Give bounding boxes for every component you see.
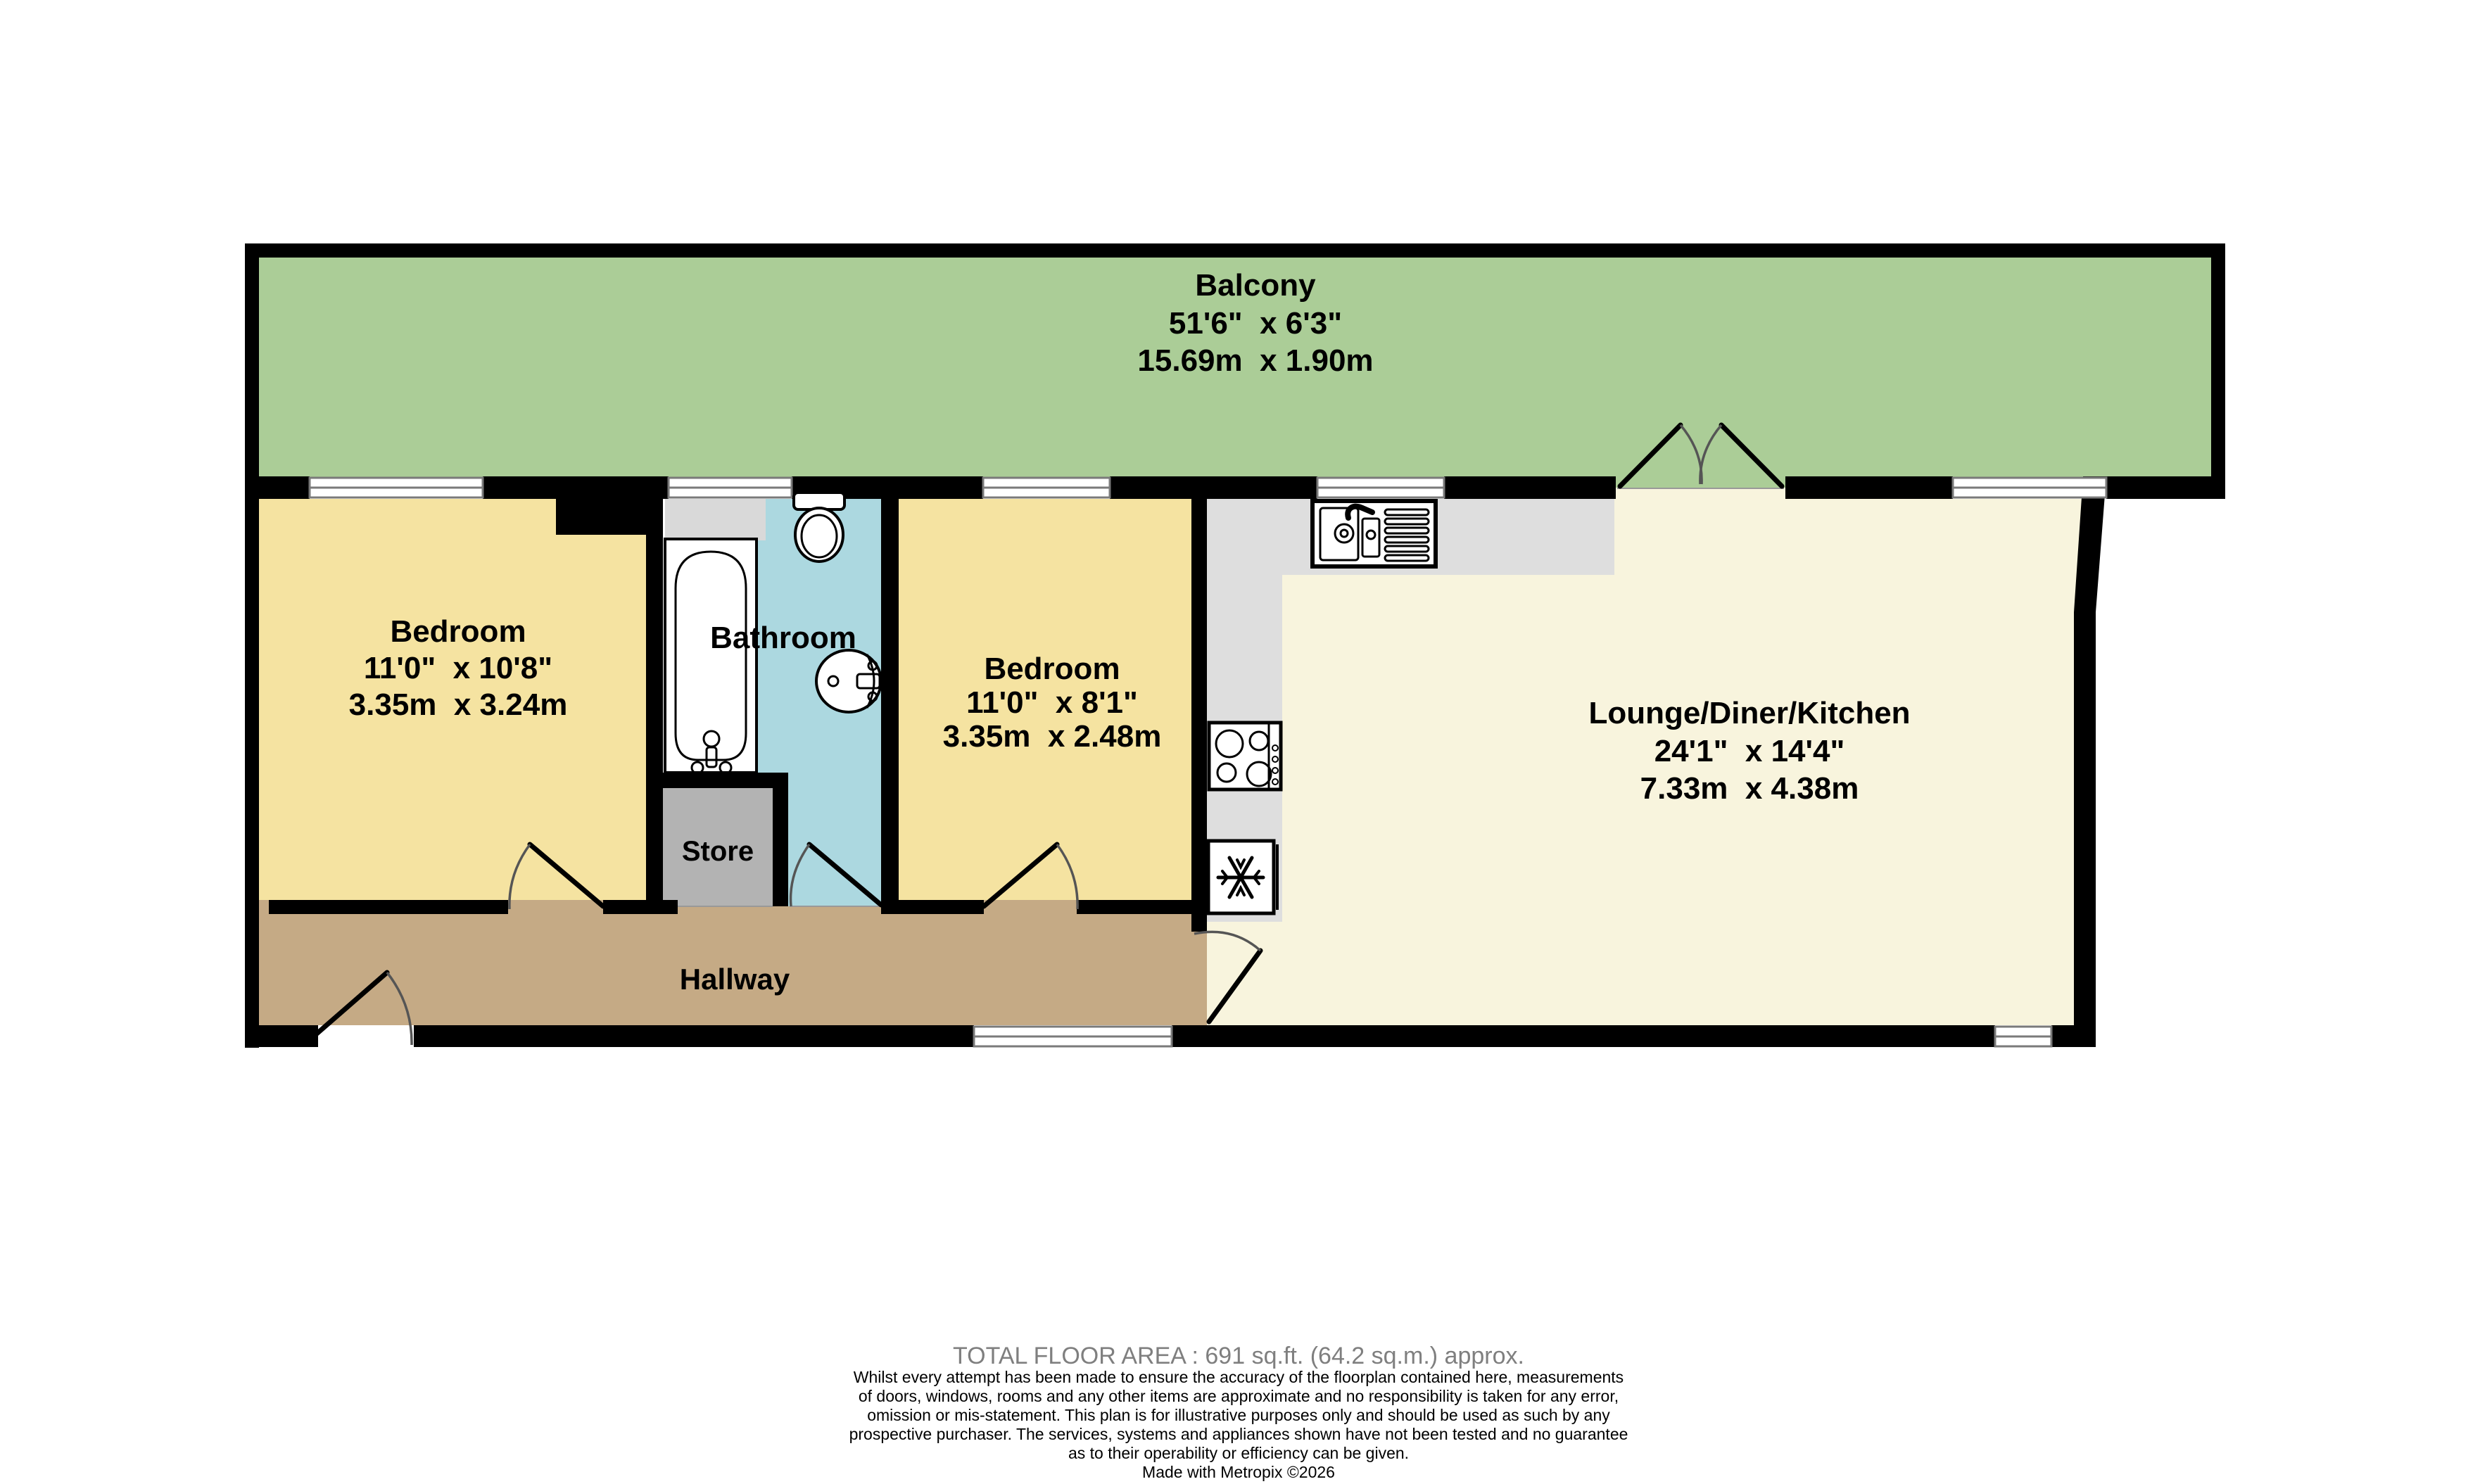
wall-mid-seg6 [1785, 476, 1953, 499]
bathtub [665, 539, 757, 773]
basin [816, 650, 881, 712]
bedroom1-label: Bedroom [390, 614, 526, 649]
wall-balcony-right [2211, 243, 2225, 499]
bathroom-label: Bathroom [710, 621, 856, 655]
wall-mid-seg2 [483, 476, 669, 499]
window-kitchen [1317, 478, 1444, 497]
wall-bath-store-divider [646, 773, 788, 788]
bedroom2-label: Bedroom [984, 652, 1120, 686]
balcony-dims-metric: 15.69m x 1.90m [1137, 343, 1373, 378]
toilet [794, 493, 844, 562]
disclaimer-text: Whilst every attempt has been made to en… [0, 1368, 2468, 1463]
floorplan-drawing: Balcony 51'6" x 6'3" 15.69m x 1.90m Bedr… [0, 0, 2468, 1484]
wall-left [245, 243, 259, 1048]
window-lounge-bottom [1995, 1027, 2051, 1046]
wall-bottom-seg1 [245, 1025, 318, 1047]
wall-bedroom1-right [646, 499, 663, 914]
lounge-dims-metric: 7.33m x 4.38m [1640, 771, 1859, 806]
wall-bottom-seg3 [1172, 1025, 1995, 1047]
wall-bedroom2-left [881, 476, 899, 906]
lounge-area [1207, 499, 2083, 1025]
wall-hall-top-seg1 [269, 900, 508, 914]
lounge-dims-imperial: 24'1" x 14'4" [1654, 734, 1845, 768]
kitchen-sink [1312, 501, 1436, 566]
wall-store-right [773, 788, 788, 906]
fridge [1208, 841, 1277, 913]
hallway-label: Hallway [680, 963, 790, 996]
window-bedroom2 [983, 478, 1110, 497]
wall-bedroom2-right [1191, 499, 1207, 932]
wall-hall-top-seg4 [1077, 900, 1207, 914]
bathroom-recess [665, 499, 766, 540]
balcony-door-threshold [1616, 488, 1785, 502]
hob [1209, 723, 1281, 789]
bedroom1-dims-imperial: 11'0" x 10'8" [364, 651, 552, 685]
bedroom2-dims-metric: 3.35m x 2.48m [943, 719, 1162, 754]
window-lounge-top [1953, 478, 2106, 497]
wall-bottom-seg2 [414, 1025, 974, 1047]
wall-mid-seg1 [245, 476, 310, 499]
wall-top [245, 243, 2225, 258]
wall-mid-seg5 [1444, 476, 1616, 499]
lounge-label: Lounge/Diner/Kitchen [1588, 696, 1910, 730]
wall-mid-seg7 [2106, 476, 2225, 499]
bedroom2-dims-imperial: 11'0" x 8'1" [966, 685, 1138, 720]
wall-mid-seg4 [1110, 476, 1317, 499]
wall-lounge-right-angled [2074, 476, 2106, 1047]
bedroom1-dims-metric: 3.35m x 3.24m [349, 687, 568, 722]
window-hallway-bottom [974, 1027, 1172, 1046]
window-bedroom1 [310, 478, 483, 497]
wall-hall-top-seg3 [881, 900, 984, 914]
metropix-credit: Made with Metropix ©2026 [0, 1463, 2468, 1482]
window-bathroom [669, 478, 792, 497]
balcony-dims-imperial: 51'6" x 6'3" [1169, 306, 1342, 341]
floorplan-page: Balcony 51'6" x 6'3" 15.69m x 1.90m Bedr… [0, 0, 2468, 1484]
balcony-label: Balcony [1195, 268, 1316, 303]
store-label: Store [682, 836, 754, 867]
total-floor-area: TOTAL FLOOR AREA : 691 sq.ft. (64.2 sq.m… [0, 1343, 2468, 1370]
wall-hall-top-seg2 [603, 900, 678, 914]
